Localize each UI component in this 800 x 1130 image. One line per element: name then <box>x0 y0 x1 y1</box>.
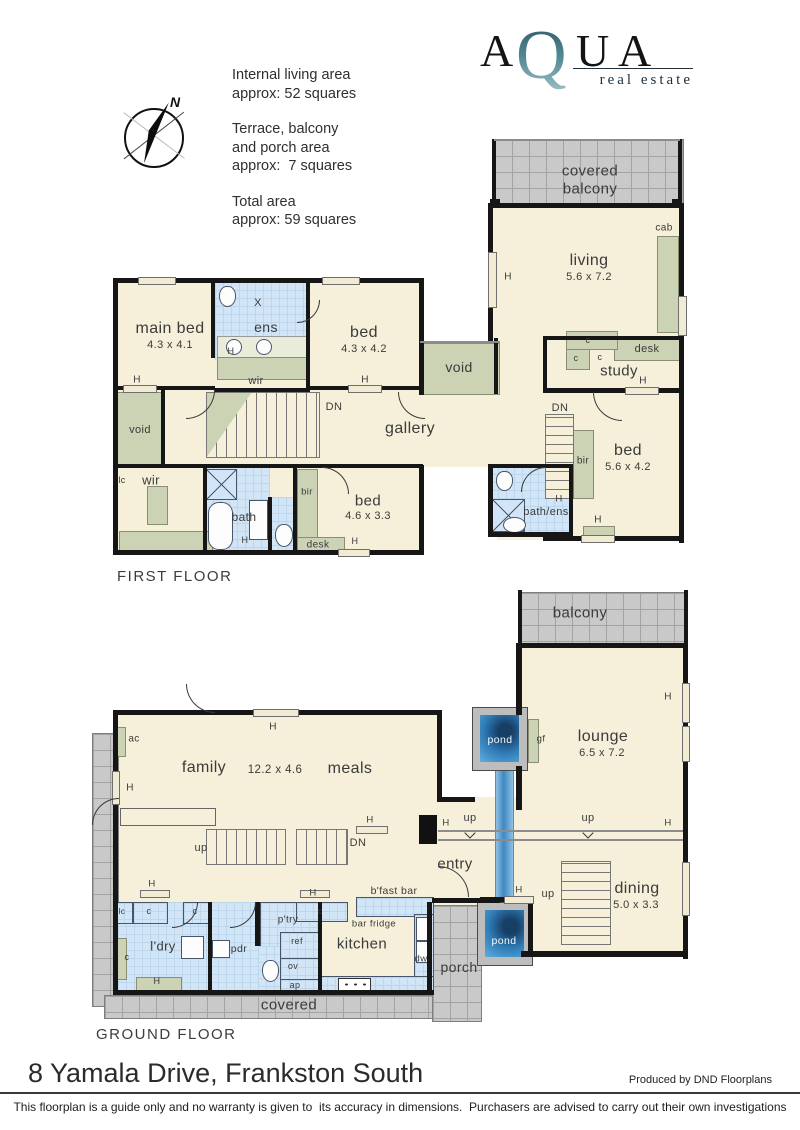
producer-credit: Produced by DND Floorplans <box>0 1074 772 1086</box>
gf-dining-stairs <box>561 861 611 945</box>
window <box>338 549 370 557</box>
powder-label: pdr <box>231 943 247 955</box>
ff-bathens-basin <box>503 517 526 533</box>
area-summary: Internal living area approx: 52 squares … <box>232 66 412 230</box>
lc-marker: lc <box>118 475 125 485</box>
wall <box>113 278 118 555</box>
wall <box>494 338 498 394</box>
ff-bathtub <box>208 502 233 550</box>
room-label: ens <box>254 319 278 335</box>
wall <box>437 797 475 802</box>
height-marker: H <box>242 535 249 545</box>
disclaimer-text: This floorplan is a guide only and no wa… <box>0 1100 800 1114</box>
room-label: living <box>570 252 609 270</box>
pantry-label: p'try <box>278 915 299 926</box>
stairs-dn-label: DN <box>326 401 343 413</box>
wall <box>161 390 165 468</box>
room-dims: 4.6 x 3.3 <box>345 510 391 522</box>
room-label: dining <box>614 880 659 898</box>
window <box>488 252 497 308</box>
area-line: and porch area <box>232 139 412 158</box>
wall <box>113 990 434 995</box>
bir-label: bir <box>301 487 313 498</box>
height-marker: H <box>366 815 373 826</box>
wall <box>684 590 688 647</box>
window <box>140 890 170 898</box>
ff-ens-basin <box>256 339 272 355</box>
wall <box>516 766 522 810</box>
height-marker: H <box>309 888 316 899</box>
height-marker: H <box>594 515 602 526</box>
wall <box>543 336 683 340</box>
wall <box>488 464 573 468</box>
ground-floor-title: GROUND FLOOR <box>96 1026 237 1043</box>
oven-label: ov <box>288 961 298 971</box>
wall <box>113 710 118 995</box>
shower-marker: X <box>254 297 262 309</box>
cupboard-marker: c <box>598 352 603 362</box>
logo-letter-q: Q <box>516 16 567 96</box>
window <box>504 896 534 904</box>
room-dims: 6.5 x 7.2 <box>579 747 625 759</box>
room-label: entry <box>437 856 472 873</box>
wall <box>427 902 432 994</box>
wall <box>419 465 424 555</box>
dw-label: dw <box>415 954 428 965</box>
ff-bath-shower <box>206 469 237 500</box>
wall <box>488 464 493 536</box>
up-label: up <box>463 812 476 824</box>
wall <box>215 388 310 392</box>
first-floor-title: FIRST FLOOR <box>117 568 232 585</box>
wall <box>306 278 310 390</box>
room-label: bed <box>355 493 381 510</box>
stairs-dn-label: DN <box>552 402 569 414</box>
window <box>682 862 690 916</box>
bfast-bar-label: b'fast bar <box>371 885 418 897</box>
wall <box>679 203 684 543</box>
wir-label: wir <box>248 375 263 387</box>
room-label: meals <box>328 760 373 778</box>
height-marker: H <box>228 346 235 356</box>
void-edge <box>420 341 500 343</box>
area-line: approx: 59 squares <box>232 211 412 230</box>
height-marker: H <box>664 692 672 703</box>
stairs-dn-label: DN <box>350 837 367 849</box>
cupboard-marker: c <box>125 952 130 962</box>
gf-pdr-basin <box>212 940 230 958</box>
compass-north-label: N <box>170 94 180 110</box>
void-label: void <box>445 359 472 375</box>
height-marker: H <box>664 818 671 829</box>
up-label: up <box>541 888 554 900</box>
area-line: Terrace, balcony <box>232 120 412 139</box>
room-label: kitchen <box>337 936 387 953</box>
wall <box>113 464 423 468</box>
room-dims: 4.3 x 4.1 <box>147 339 193 351</box>
gf-family-bench <box>120 808 216 826</box>
area-line: Internal living area <box>232 66 412 85</box>
gf-stairs-dn <box>296 829 348 865</box>
step-line <box>438 830 688 832</box>
height-marker: H <box>555 494 562 505</box>
window <box>682 726 690 762</box>
compass: N <box>122 92 190 176</box>
room-label: bath <box>232 510 257 524</box>
ac-label: ac <box>128 734 139 745</box>
wall <box>672 199 682 207</box>
room-label: study <box>600 363 638 380</box>
footer-divider <box>0 1092 800 1094</box>
room-label: bed <box>614 442 642 460</box>
step-line <box>438 839 688 841</box>
wall <box>528 902 533 955</box>
height-marker: H <box>639 376 647 387</box>
gf-wc-toilet <box>262 960 279 982</box>
ff-wc-toilet <box>275 524 293 547</box>
void-label: void <box>129 424 151 436</box>
cupboard-marker: c <box>586 335 591 345</box>
door-arc <box>186 684 215 713</box>
room-label: bath/ens <box>523 506 568 518</box>
logo-tagline: real estate <box>573 68 693 89</box>
wall <box>516 643 688 648</box>
wall <box>492 139 496 205</box>
aqua-logo: A Q U A real estate <box>478 10 698 102</box>
ff-bathens-toilet <box>496 471 513 491</box>
window <box>581 535 615 543</box>
fridge-label: ref <box>291 936 303 946</box>
logo-letter: A <box>480 24 513 77</box>
window <box>348 385 382 393</box>
covered-label: covered <box>261 997 317 1014</box>
room-dims: 5.0 x 3.3 <box>613 899 659 911</box>
appliance-label: ap <box>290 980 301 990</box>
wall <box>419 278 424 395</box>
height-marker: H <box>126 783 134 794</box>
room-label: bed <box>350 324 378 342</box>
gf-laundry-trough <box>181 936 204 959</box>
window <box>625 387 659 395</box>
height-marker: H <box>269 722 277 733</box>
bir-label: bir <box>577 456 589 467</box>
wir-label: wir <box>142 473 160 488</box>
wall <box>569 464 573 537</box>
height-marker: H <box>504 272 512 283</box>
room-label: gallery <box>385 420 435 438</box>
height-marker: H <box>352 536 359 546</box>
ff-wir-island <box>147 486 168 525</box>
wall <box>490 203 684 208</box>
gasfire-label: gf <box>537 734 546 745</box>
room-label: balcony <box>553 605 608 622</box>
balcony-edge <box>494 139 680 141</box>
bar-fridge-label: bar fridge <box>352 919 396 930</box>
window <box>138 277 176 285</box>
gf-pond-bottom-water <box>485 910 524 957</box>
room-label: main bed <box>135 320 204 338</box>
wall <box>208 902 212 992</box>
room-dims: 5.6 x 7.2 <box>566 271 612 283</box>
height-marker: H <box>154 976 161 986</box>
lc-marker: lc <box>119 906 126 916</box>
cupboard-marker: c <box>574 353 579 363</box>
height-marker: H <box>361 375 369 386</box>
room-label: covered <box>562 163 618 180</box>
ff-cab-joinery <box>657 236 679 333</box>
cupboard-marker: c <box>147 906 152 916</box>
cupboard-marker: c <box>318 906 323 916</box>
room-dims: 4.3 x 4.2 <box>341 343 387 355</box>
ff-study-cupboard <box>566 331 618 350</box>
wall <box>490 199 500 207</box>
wall <box>543 336 547 392</box>
desk-label: desk <box>635 343 660 355</box>
wall <box>518 590 522 647</box>
up-label: up <box>581 812 594 824</box>
ff-ens-toilet <box>219 286 236 307</box>
ff-wir-bench <box>119 531 213 552</box>
pond-label: pond <box>492 935 517 947</box>
room-label: porch <box>440 959 477 975</box>
wall <box>293 464 297 554</box>
room-label: family <box>182 759 226 777</box>
wall <box>268 497 272 554</box>
wall <box>437 710 442 802</box>
ff-bir-left <box>297 469 318 540</box>
wall <box>516 643 522 715</box>
up-label: up <box>194 842 207 854</box>
wall <box>521 951 688 957</box>
window <box>322 277 360 285</box>
room-dims: 5.6 x 4.2 <box>605 461 651 473</box>
floorplan-page: A Q U A real estate N Internal living ar… <box>0 0 800 1130</box>
cupboard-marker: c <box>193 906 198 916</box>
area-line: approx: 52 squares <box>232 85 412 104</box>
room-label: balcony <box>563 181 618 198</box>
area-line: Total area <box>232 193 412 212</box>
pond-label: pond <box>488 734 513 746</box>
height-marker: H <box>148 879 155 890</box>
height-marker: H <box>442 818 449 829</box>
window <box>123 385 157 393</box>
wall <box>203 464 207 554</box>
height-marker: H <box>515 885 522 896</box>
gf-water-channel <box>495 768 514 908</box>
wall <box>255 902 260 946</box>
cab-label: cab <box>655 223 672 234</box>
desk-label: desk <box>307 540 330 551</box>
wall <box>211 278 215 358</box>
window <box>682 683 690 723</box>
area-line: approx: 7 squares <box>232 157 412 176</box>
window <box>253 709 299 717</box>
room-dims: 12.2 x 4.6 <box>248 764 303 776</box>
laundry-label: l'dry <box>150 939 175 954</box>
window <box>678 296 687 336</box>
gf-stairs-up <box>206 829 286 865</box>
gf-fireplace <box>419 815 437 844</box>
gf-oven-box <box>280 958 320 980</box>
wall <box>678 139 682 205</box>
height-marker: H <box>133 375 141 386</box>
window <box>356 826 388 834</box>
room-label: lounge <box>578 728 628 746</box>
